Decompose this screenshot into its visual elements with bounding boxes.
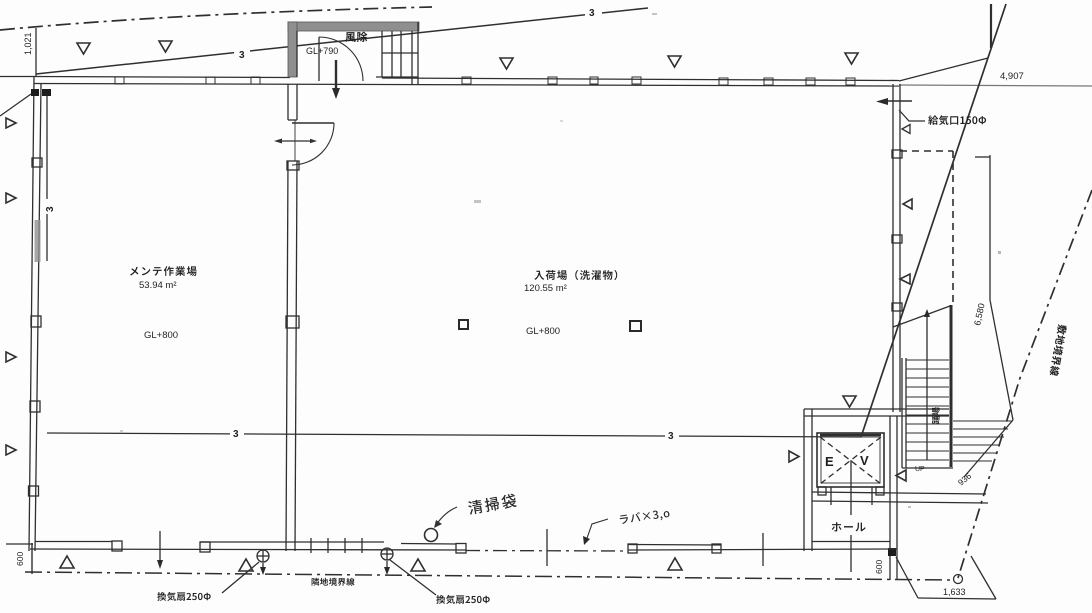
svg-text:53.94 m²: 53.94 m²	[139, 280, 177, 291]
svg-text:600: 600	[874, 560, 884, 574]
svg-text:3: 3	[668, 431, 674, 442]
svg-text:UP: UP	[915, 466, 925, 473]
svg-text:GL+800: GL+800	[526, 326, 560, 337]
svg-text:3: 3	[233, 429, 239, 440]
svg-text:120.55 m²: 120.55 m²	[524, 283, 567, 294]
svg-text:3: 3	[45, 206, 56, 212]
svg-text:3: 3	[239, 50, 245, 61]
svg-text:600: 600	[15, 552, 25, 566]
svg-text:GL+790: GL+790	[306, 46, 338, 56]
svg-text:1,021: 1,021	[23, 32, 33, 55]
svg-text:V: V	[860, 453, 869, 468]
svg-text:E: E	[825, 454, 834, 469]
svg-text:4,907: 4,907	[1000, 71, 1024, 82]
svg-text:1,633: 1,633	[943, 587, 966, 597]
svg-text:3: 3	[589, 8, 595, 19]
svg-text:GL+800: GL+800	[144, 330, 178, 341]
